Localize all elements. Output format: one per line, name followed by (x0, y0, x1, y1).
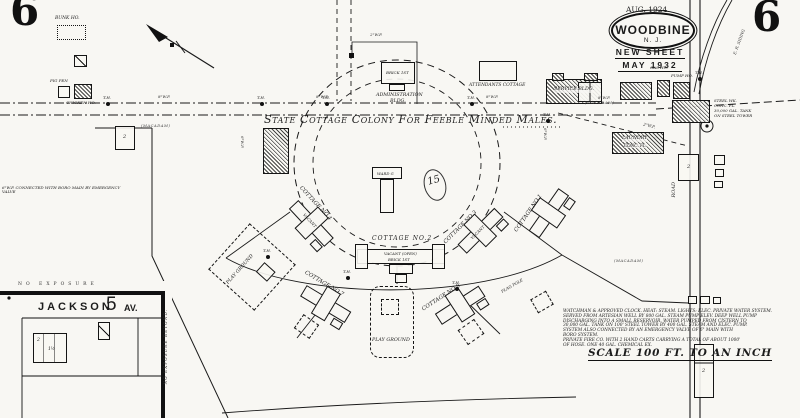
small-shed (74, 55, 87, 67)
playground-shed (381, 299, 399, 315)
hydrant: T.H. (106, 102, 110, 106)
water-pipe-label-6-1: 6"W.P. (240, 136, 244, 148)
road-label: ROAD (672, 182, 677, 197)
bunk-house-label: BUNK HO. (55, 17, 80, 22)
water-pipe-label-6-2: 6"W.P. (543, 128, 547, 140)
macadam-label-3: (MACADAM) (614, 259, 643, 263)
general-notes: WATCHMAN & APPROVED CLOCK. HEAT: STEAM. … (563, 310, 761, 349)
hydrant-dot (266, 255, 270, 259)
north-arrow (146, 24, 214, 68)
avenue-label: AV. (124, 304, 138, 313)
hydrant-label: T.H. (103, 95, 111, 100)
hydrant: T.H. (455, 287, 459, 291)
avenue-number: 5 (106, 295, 117, 314)
laundry-label-2: CONC. FL. (624, 144, 647, 148)
hydrant-dot (106, 102, 110, 106)
gas-house (657, 80, 670, 97)
hydrant-dot (698, 77, 702, 81)
hydrant: T.H. (698, 77, 702, 81)
sheet-number-right: 6 (752, 0, 781, 41)
hydrant: T.H. (266, 255, 270, 259)
playground-south-label: PLAY GROUND (372, 339, 410, 344)
story-label: 1½ (48, 348, 55, 353)
hydrant: T.H. (546, 119, 550, 123)
cottage2-wing-east (432, 244, 445, 269)
pipe-label-2wp: 2"W.P. (370, 33, 382, 37)
story-label: 2 (123, 135, 126, 140)
scale-note: SCALE 100 FT. TO AN INCH (588, 348, 772, 361)
jackson-street-name: JACKSON (38, 302, 113, 313)
right-shed-2 (715, 169, 724, 177)
dormitory-building (263, 128, 289, 174)
title-oval: WOODBINE N. J. (611, 12, 695, 49)
pump-house (673, 82, 690, 99)
administration-label-2: BLDG. (390, 100, 406, 105)
cottage2-wing-west (355, 244, 368, 269)
hydrant-label: T.H. (467, 95, 475, 100)
rail-siding-curve-2 (699, 0, 732, 94)
inset-hydrant-dot (7, 296, 10, 299)
new-sheet-date: MAY 1932 (618, 61, 682, 72)
jackson-av-inset: NO EXPOSURE JACKSON 5 AV. NO EXPOSURE BE… (0, 281, 172, 418)
field-boundary-south (222, 397, 576, 413)
hydrant-dot (346, 276, 350, 280)
hydrant-label: T.H. (695, 70, 703, 75)
administration-building: BRICK 1ST (381, 62, 415, 84)
vacant-note: VACANT (384, 252, 401, 256)
hydrant-label: T.H. (452, 280, 460, 285)
power-house (672, 100, 710, 123)
boro-connection-note: 6"W.P. CONNECTED WITH BORO MAIN BY EMERG… (2, 186, 134, 194)
bottom-right-shed-3 (713, 297, 721, 304)
water-main-label-1: 8"W.P. (158, 95, 170, 99)
steel-tower-note-4: ON STEEL TOWER (714, 114, 752, 118)
left-small-building: 2 (115, 126, 135, 150)
macadam-label-1: (MACADAM) (141, 124, 170, 128)
cottage2-porch (389, 264, 413, 274)
hydrant-label: T.H. (257, 95, 265, 100)
sheet-number-left: 6 (10, 0, 39, 35)
pump-house-label: PUMP HO. (671, 74, 693, 78)
hydrant-label: T.H. (543, 112, 551, 117)
chicken-house (74, 84, 92, 99)
laundry-label-1: LAUNDRY (622, 137, 647, 142)
hydrant-label: T.H. (322, 95, 330, 100)
service-building-wing-2 (584, 73, 598, 81)
playground-south (370, 286, 414, 358)
attendants-cottage-label: ATTENDANTS COTTAGE (469, 84, 525, 88)
northeast-building-2 (620, 82, 652, 100)
brick-note: BRICK 1ST (386, 71, 409, 75)
service-building-label: SERVICE BLDG. (554, 88, 594, 93)
bottom-right-shed-2 (700, 296, 710, 304)
no-exposure-label: NO EXPOSURE (18, 283, 98, 288)
right-shed-1 (714, 155, 725, 165)
hydrant-dot (325, 102, 329, 106)
right-building-1: 2 (678, 154, 699, 181)
state-name: N. J. (613, 37, 693, 44)
colony-title: State Cottage Colony For Feeble Minded M… (264, 114, 557, 125)
chicken-house-label: CHICKEN HO. (66, 101, 96, 105)
city-name: WOODBINE (613, 23, 693, 37)
hydrant-dot (260, 102, 264, 106)
pig-pen-label: PIG PEN (50, 79, 68, 83)
survey-date: AUG. 1924 (626, 6, 667, 14)
administration-porch (389, 84, 405, 91)
cottage2-label: COTTAGE NO.2 (372, 236, 432, 242)
hydrant-label: T.H. (263, 248, 271, 253)
new-sheet-label: NEW SHEET (615, 48, 685, 59)
pig-pen (58, 86, 70, 98)
inset-building-2 (98, 322, 110, 340)
cottage2-step (395, 274, 407, 283)
story-label: 2 (687, 165, 690, 170)
hydrant: T.H. (346, 276, 350, 280)
hydrant-dot (546, 119, 550, 123)
hydrant-dot (470, 102, 474, 106)
hydrant: T.H. (470, 102, 474, 106)
hydrant: T.H. (325, 102, 329, 106)
inset-building-1: 2 1½ (33, 333, 67, 363)
open-note: (OPEN) (402, 252, 417, 256)
no-exposure-beyond-label: NO EXPOSURE BEYOND. (165, 309, 169, 385)
service-building-wing-1 (552, 73, 564, 81)
sanborn-map-sheet: 6 6 AUG. 1924 WOODBINE N. J. NEW SHEET M… (0, 0, 800, 418)
ward-g-stem (380, 179, 394, 213)
water-pipe-valve (349, 53, 354, 58)
story-label: 2 (37, 339, 40, 344)
hydrant-label: T.H. (343, 269, 351, 274)
ward-g-building: WARD G (372, 167, 402, 179)
macadam-label-2: (MACADAM) (585, 101, 614, 105)
right-shed-3 (714, 181, 723, 188)
bunk-house (57, 25, 86, 40)
playground-shed (256, 262, 276, 282)
brick-note: BRICK 1ST (388, 258, 410, 262)
water-main-label-3: 8"W.P. (486, 95, 498, 99)
story-label: 2 (702, 369, 705, 374)
ward-g-label: WARD G (377, 172, 394, 176)
hydrant: T.H. (260, 102, 264, 106)
hydrant-dot (455, 287, 459, 291)
bottom-right-shed-1 (688, 296, 697, 304)
attendants-cottage (479, 61, 517, 81)
